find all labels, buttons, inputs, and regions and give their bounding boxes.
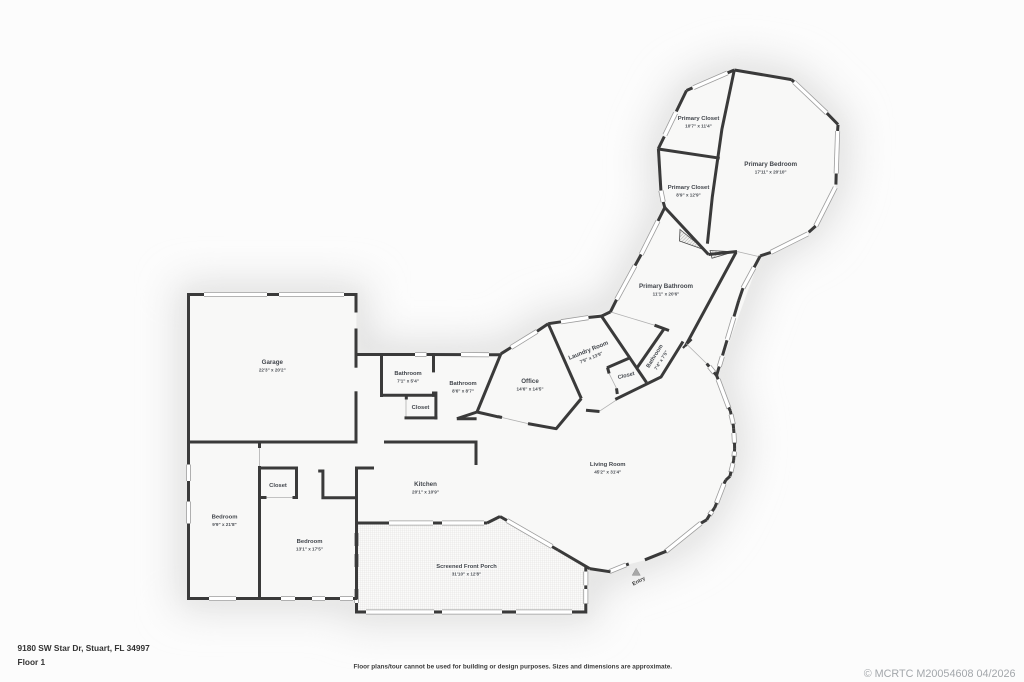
svg-text:Floor plans/tour cannot be use: Floor plans/tour cannot be used for buil… <box>354 664 673 671</box>
svg-text:10'7" x 11'4": 10'7" x 11'4" <box>685 124 712 129</box>
svg-text:31'10" x 12'8": 31'10" x 12'8" <box>452 572 482 577</box>
svg-text:© MCRTC M20054608 04/2026: © MCRTC M20054608 04/2026 <box>864 668 1016 680</box>
svg-text:Primary Closet: Primary Closet <box>678 116 720 122</box>
svg-text:Primary Bathroom: Primary Bathroom <box>639 283 693 290</box>
svg-text:11'1" x 20'6": 11'1" x 20'6" <box>653 292 680 297</box>
svg-text:Primary Bedroom: Primary Bedroom <box>744 161 797 168</box>
svg-text:Bathroom: Bathroom <box>394 371 421 377</box>
svg-text:7'1" x 5'4": 7'1" x 5'4" <box>397 379 419 384</box>
svg-text:Garage: Garage <box>262 359 284 366</box>
svg-text:Office: Office <box>521 378 539 385</box>
svg-text:Living Room: Living Room <box>590 462 626 468</box>
svg-text:8'6" x 8'7": 8'6" x 8'7" <box>452 389 474 394</box>
svg-text:Closet: Closet <box>412 405 430 411</box>
svg-text:17'11" x 20'10": 17'11" x 20'10" <box>755 170 787 175</box>
svg-text:Kitchen: Kitchen <box>414 481 437 488</box>
svg-text:Screened Front Porch: Screened Front Porch <box>436 564 497 570</box>
svg-text:Closet: Closet <box>269 483 287 489</box>
svg-text:20'1" x 10'9": 20'1" x 10'9" <box>412 490 439 495</box>
svg-text:9'9" x 21'8": 9'9" x 21'8" <box>212 522 236 527</box>
svg-text:Bathroom: Bathroom <box>449 381 476 387</box>
svg-text:Bedroom: Bedroom <box>297 539 323 545</box>
svg-text:13'1" x 17'5": 13'1" x 17'5" <box>296 547 323 552</box>
svg-text:9180 SW Star Dr, Stuart, FL 34: 9180 SW Star Dr, Stuart, FL 34997 <box>18 643 151 653</box>
svg-text:Floor 1: Floor 1 <box>18 657 46 667</box>
svg-text:8'9" x 12'9": 8'9" x 12'9" <box>676 193 700 198</box>
svg-text:14'6" x 14'5": 14'6" x 14'5" <box>517 387 544 392</box>
svg-text:Primary Closet: Primary Closet <box>668 185 710 191</box>
svg-text:45'2" x 31'4": 45'2" x 31'4" <box>594 470 621 475</box>
svg-text:Bedroom: Bedroom <box>212 515 238 521</box>
svg-text:22'3" x 20'2": 22'3" x 20'2" <box>259 368 286 373</box>
